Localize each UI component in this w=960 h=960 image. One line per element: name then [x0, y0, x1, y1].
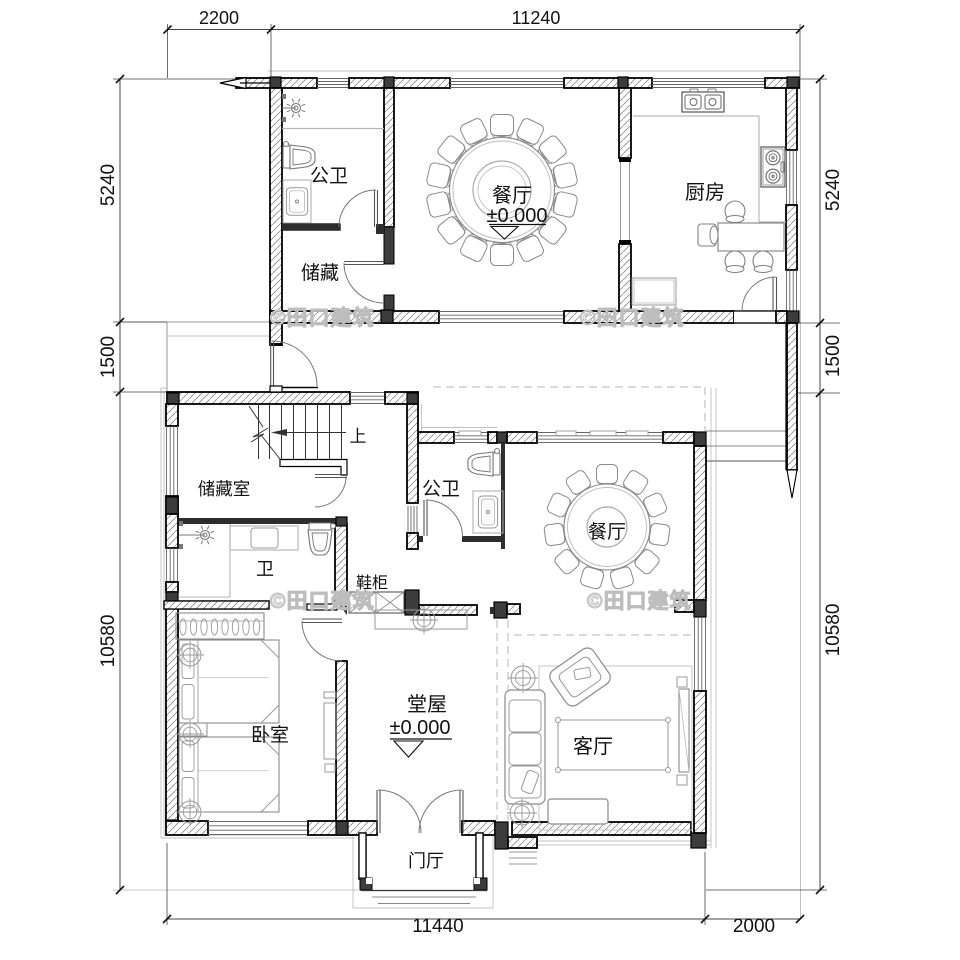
svg-text:10580: 10580	[98, 615, 119, 668]
svg-text:©田口建筑: ©田口建筑	[580, 306, 684, 330]
svg-text:卧室: 卧室	[251, 724, 289, 746]
svg-text:餐厅: 餐厅	[492, 184, 532, 207]
svg-text:上: 上	[350, 427, 367, 446]
svg-text:储藏: 储藏	[301, 262, 339, 284]
svg-text:1500: 1500	[98, 336, 119, 378]
svg-text:公卫: 公卫	[310, 166, 348, 187]
svg-text:±0.000: ±0.000	[389, 717, 450, 739]
svg-text:©田口建筑: ©田口建筑	[587, 589, 691, 613]
svg-text:堂屋: 堂屋	[407, 693, 447, 716]
svg-text:5240: 5240	[98, 164, 119, 206]
svg-text:5240: 5240	[823, 169, 844, 211]
svg-text:2200: 2200	[199, 8, 239, 28]
svg-text:11240: 11240	[512, 8, 561, 28]
svg-text:门厅: 门厅	[408, 851, 444, 871]
svg-text:公卫: 公卫	[422, 479, 460, 500]
svg-text:1500: 1500	[823, 335, 844, 377]
svg-text:厨房: 厨房	[685, 181, 725, 204]
svg-text:±0.000: ±0.000	[486, 205, 547, 227]
svg-text:11440: 11440	[412, 916, 463, 937]
svg-text:卫: 卫	[256, 559, 274, 579]
svg-text:10580: 10580	[823, 604, 844, 657]
svg-text:©田口建筑: ©田口建筑	[270, 306, 374, 330]
svg-text:餐厅: 餐厅	[588, 521, 626, 543]
svg-text:储藏室: 储藏室	[198, 479, 251, 499]
svg-text:客厅: 客厅	[573, 735, 613, 758]
svg-text:©田口建筑: ©田口建筑	[270, 589, 374, 613]
svg-text:2000: 2000	[733, 916, 775, 937]
